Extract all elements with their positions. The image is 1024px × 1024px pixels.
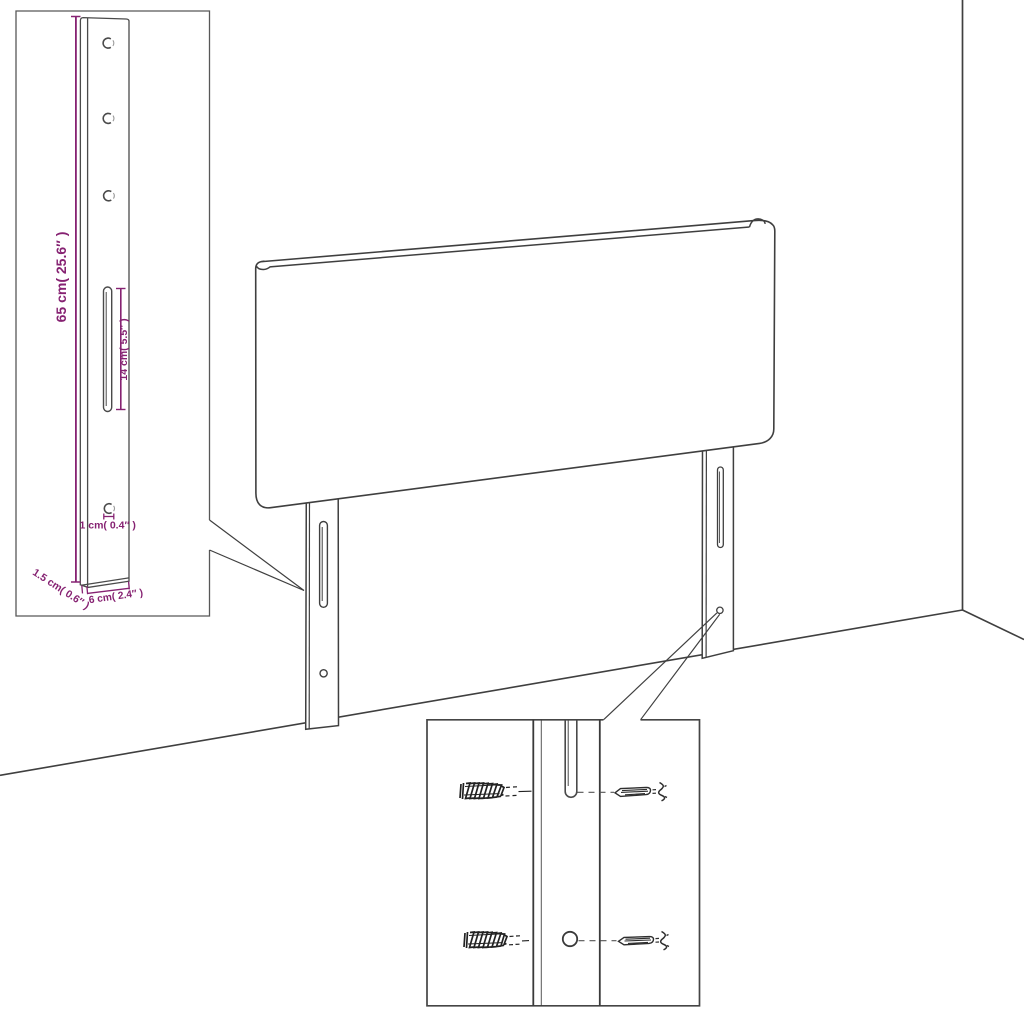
- svg-text:1 cm( 0.4″ ): 1 cm( 0.4″ ): [80, 520, 136, 532]
- svg-text:65 cm( 25.6″ ): 65 cm( 25.6″ ): [53, 232, 69, 323]
- svg-text:14 cm( 5.5″ ): 14 cm( 5.5″ ): [118, 318, 130, 380]
